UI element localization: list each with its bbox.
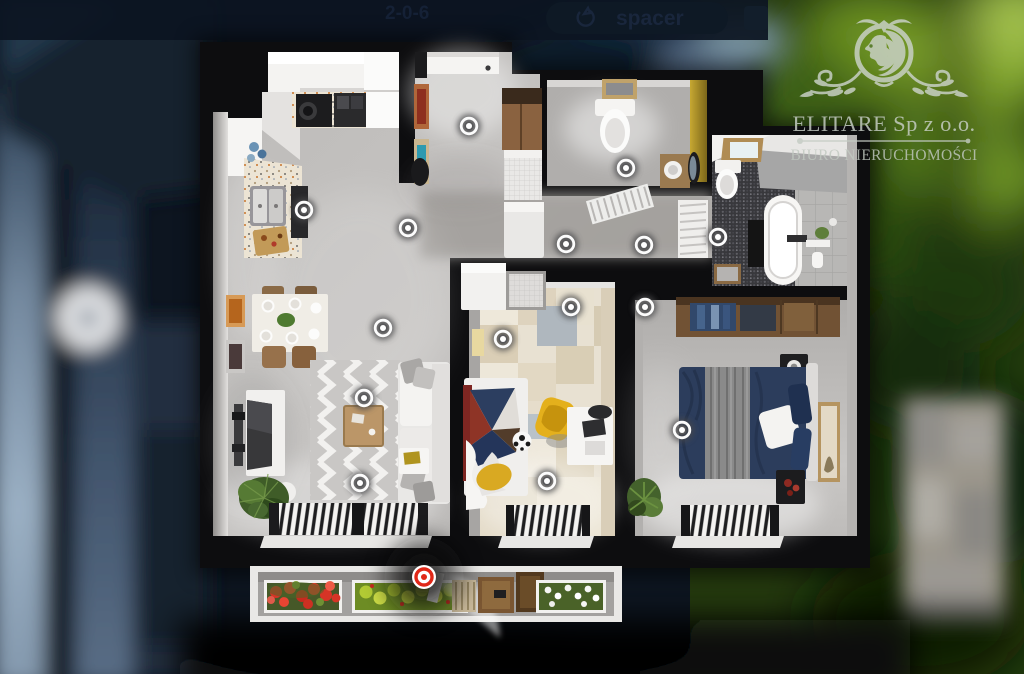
svg-text:BIURO NIERUCHOMOŚCI: BIURO NIERUCHOMOŚCI bbox=[791, 147, 978, 164]
svg-text:ELITARE Sp z o.o.: ELITARE Sp z o.o. bbox=[792, 111, 975, 136]
svg-text:2-0-6: 2-0-6 bbox=[385, 3, 429, 24]
svg-text:spacer: spacer bbox=[616, 7, 684, 30]
